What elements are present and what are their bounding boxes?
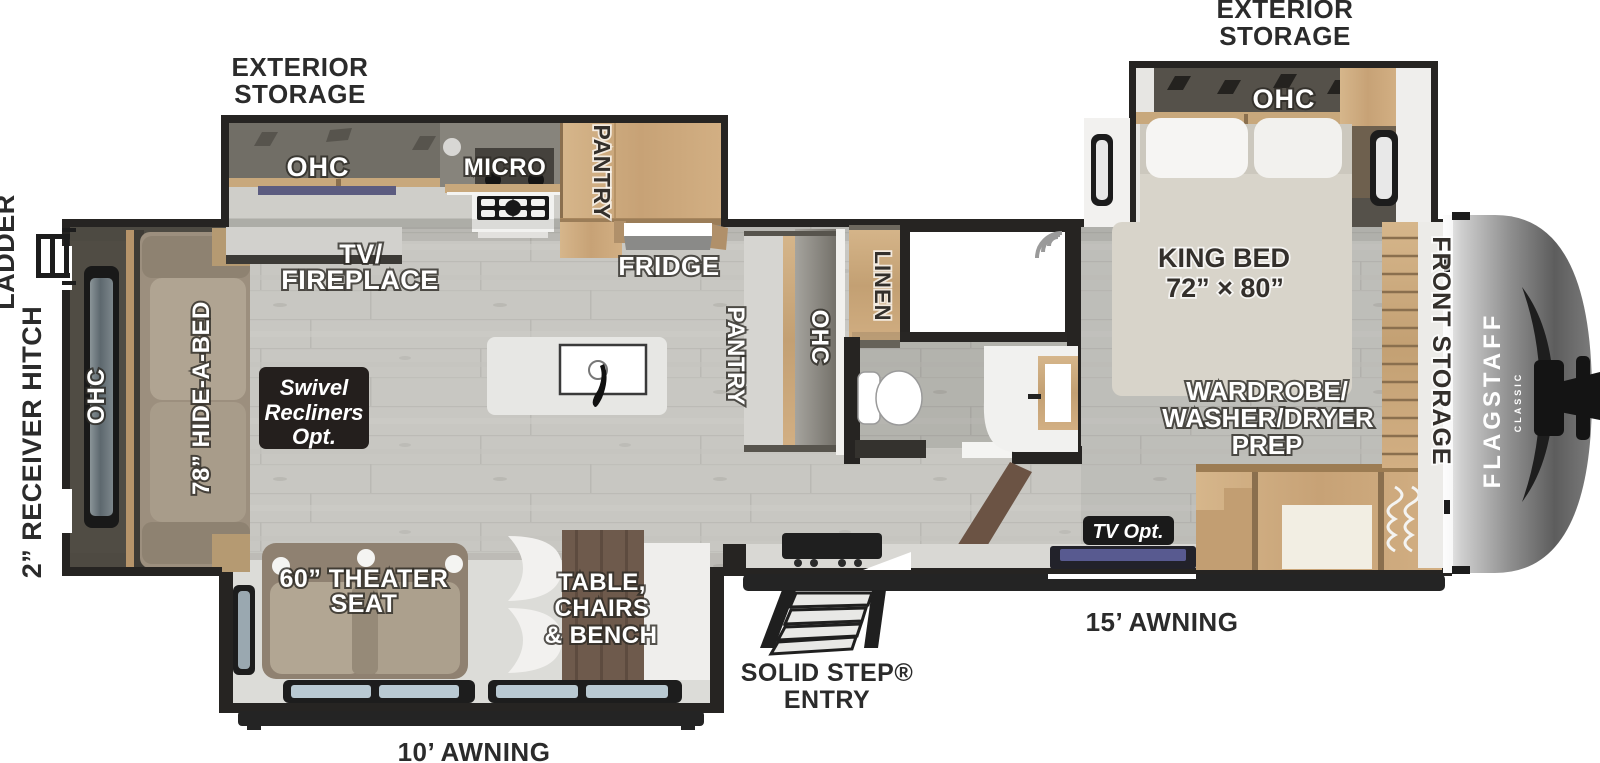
svg-text:Opt.: Opt. xyxy=(292,424,336,449)
svg-text:TABLE,: TABLE, xyxy=(558,569,646,596)
svg-text:15’ AWNING: 15’ AWNING xyxy=(1086,607,1239,637)
svg-text:CLASSIC: CLASSIC xyxy=(1513,372,1523,433)
svg-text:FRONT STORAGE: FRONT STORAGE xyxy=(1427,236,1455,465)
svg-text:78” HIDE-A-BED: 78” HIDE-A-BED xyxy=(188,301,215,495)
svg-text:TV Opt.: TV Opt. xyxy=(1092,521,1163,543)
svg-text:KING BED: KING BED xyxy=(1158,243,1290,273)
svg-text:PANTRY: PANTRY xyxy=(589,125,615,220)
svg-text:60” THEATER: 60” THEATER xyxy=(280,565,449,593)
svg-text:SOLID STEP®: SOLID STEP® xyxy=(741,659,914,687)
svg-text:OHC: OHC xyxy=(1253,84,1316,114)
svg-text:& BENCH: & BENCH xyxy=(545,622,658,649)
svg-text:OHC: OHC xyxy=(287,152,350,182)
svg-text:STORAGE: STORAGE xyxy=(1219,21,1351,51)
svg-text:2” RECEIVER HITCH: 2” RECEIVER HITCH xyxy=(17,306,47,579)
svg-text:WASHER/DRYER: WASHER/DRYER xyxy=(1162,403,1374,433)
svg-text:FRIDGE: FRIDGE xyxy=(618,251,719,281)
svg-text:OHC: OHC xyxy=(806,310,833,365)
svg-text:Swivel: Swivel xyxy=(280,375,349,400)
svg-text:10’ AWNING: 10’ AWNING xyxy=(398,737,551,763)
svg-text:PREP: PREP xyxy=(1232,430,1303,460)
svg-text:Recliners: Recliners xyxy=(264,400,363,425)
svg-text:LADDER: LADDER xyxy=(0,194,20,310)
svg-text:72” × 80”: 72” × 80” xyxy=(1166,273,1284,303)
svg-text:MICRO: MICRO xyxy=(464,154,547,181)
svg-text:FLAGSTAFF: FLAGSTAFF xyxy=(1479,312,1506,489)
svg-text:PANTRY: PANTRY xyxy=(722,307,749,406)
svg-text:ENTRY: ENTRY xyxy=(784,686,870,714)
svg-text:CHAIRS: CHAIRS xyxy=(554,595,649,622)
svg-text:STORAGE: STORAGE xyxy=(234,79,366,109)
svg-text:OHC: OHC xyxy=(83,368,110,424)
svg-text:FIREPLACE: FIREPLACE xyxy=(281,265,439,295)
svg-text:WARDROBE/: WARDROBE/ xyxy=(1186,376,1348,406)
svg-text:SEAT: SEAT xyxy=(331,590,398,618)
svg-text:LINEN: LINEN xyxy=(870,251,895,322)
svg-text:EXTERIOR: EXTERIOR xyxy=(232,52,369,82)
